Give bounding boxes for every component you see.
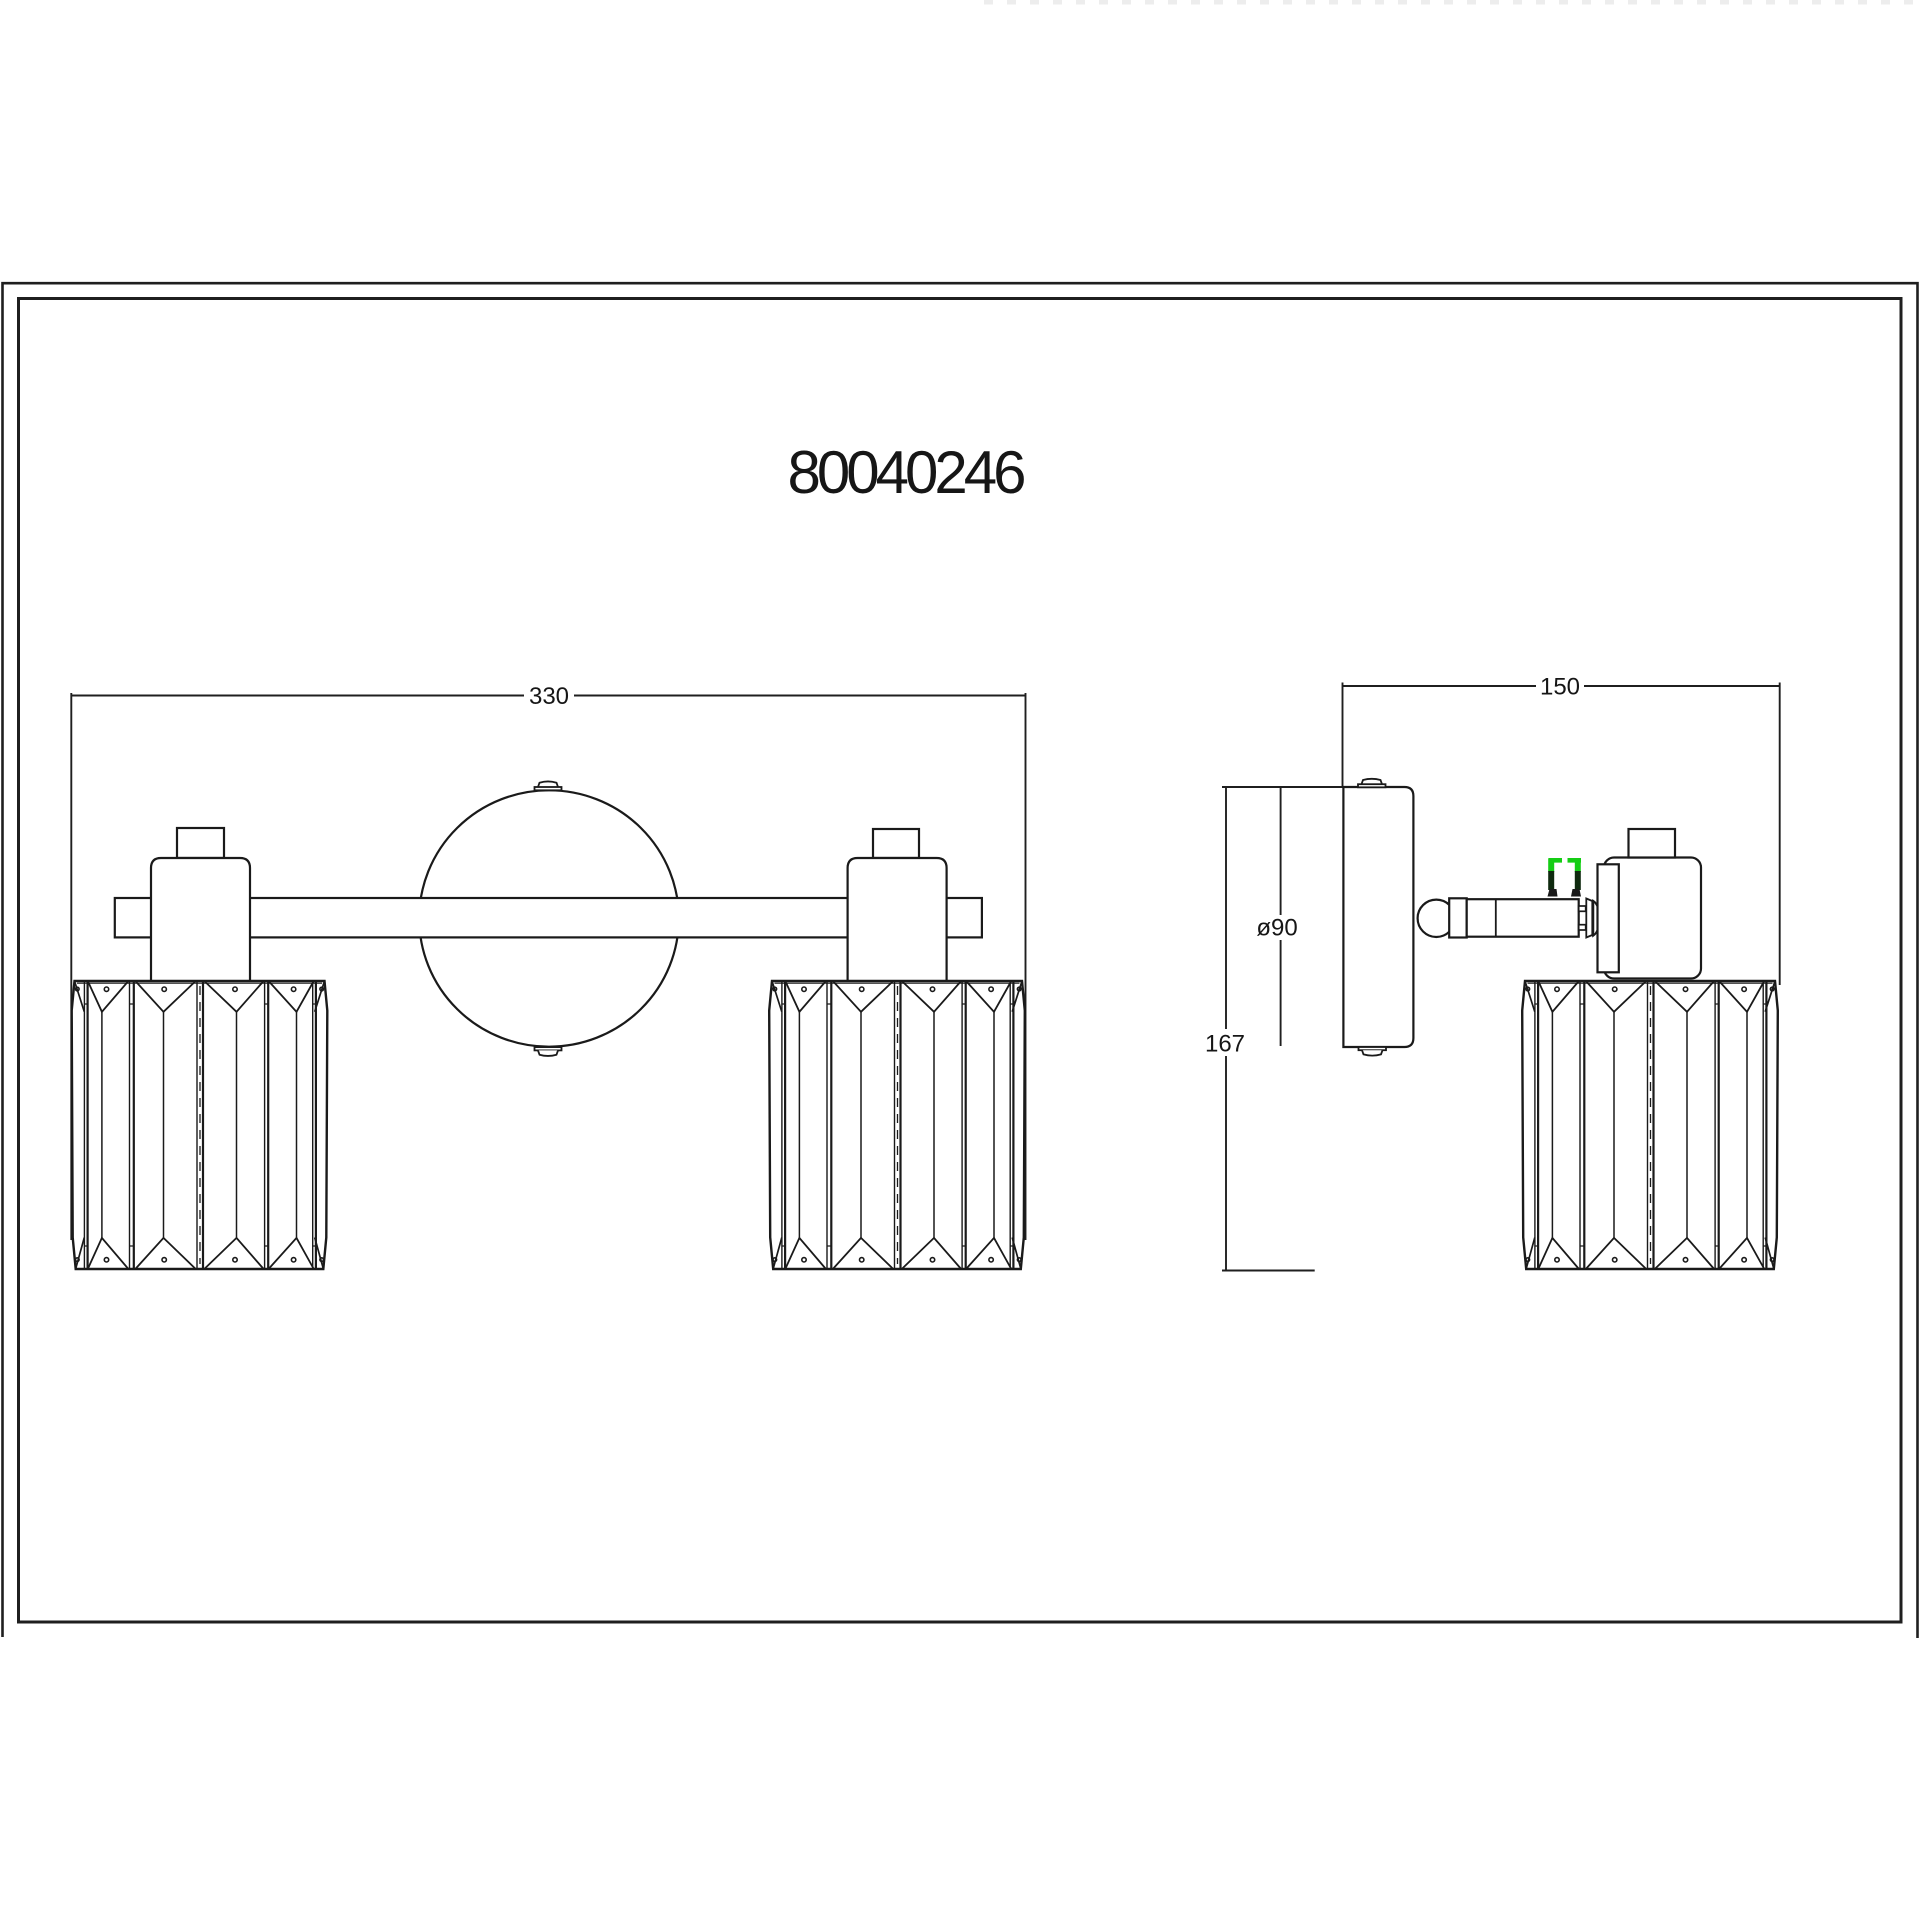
svg-text:ø90: ø90 <box>1256 915 1297 942</box>
svg-text:150: 150 <box>1540 674 1580 701</box>
svg-text:80040246: 80040246 <box>788 439 1025 506</box>
svg-text:167: 167 <box>1205 1031 1245 1058</box>
svg-text:330: 330 <box>529 683 569 710</box>
